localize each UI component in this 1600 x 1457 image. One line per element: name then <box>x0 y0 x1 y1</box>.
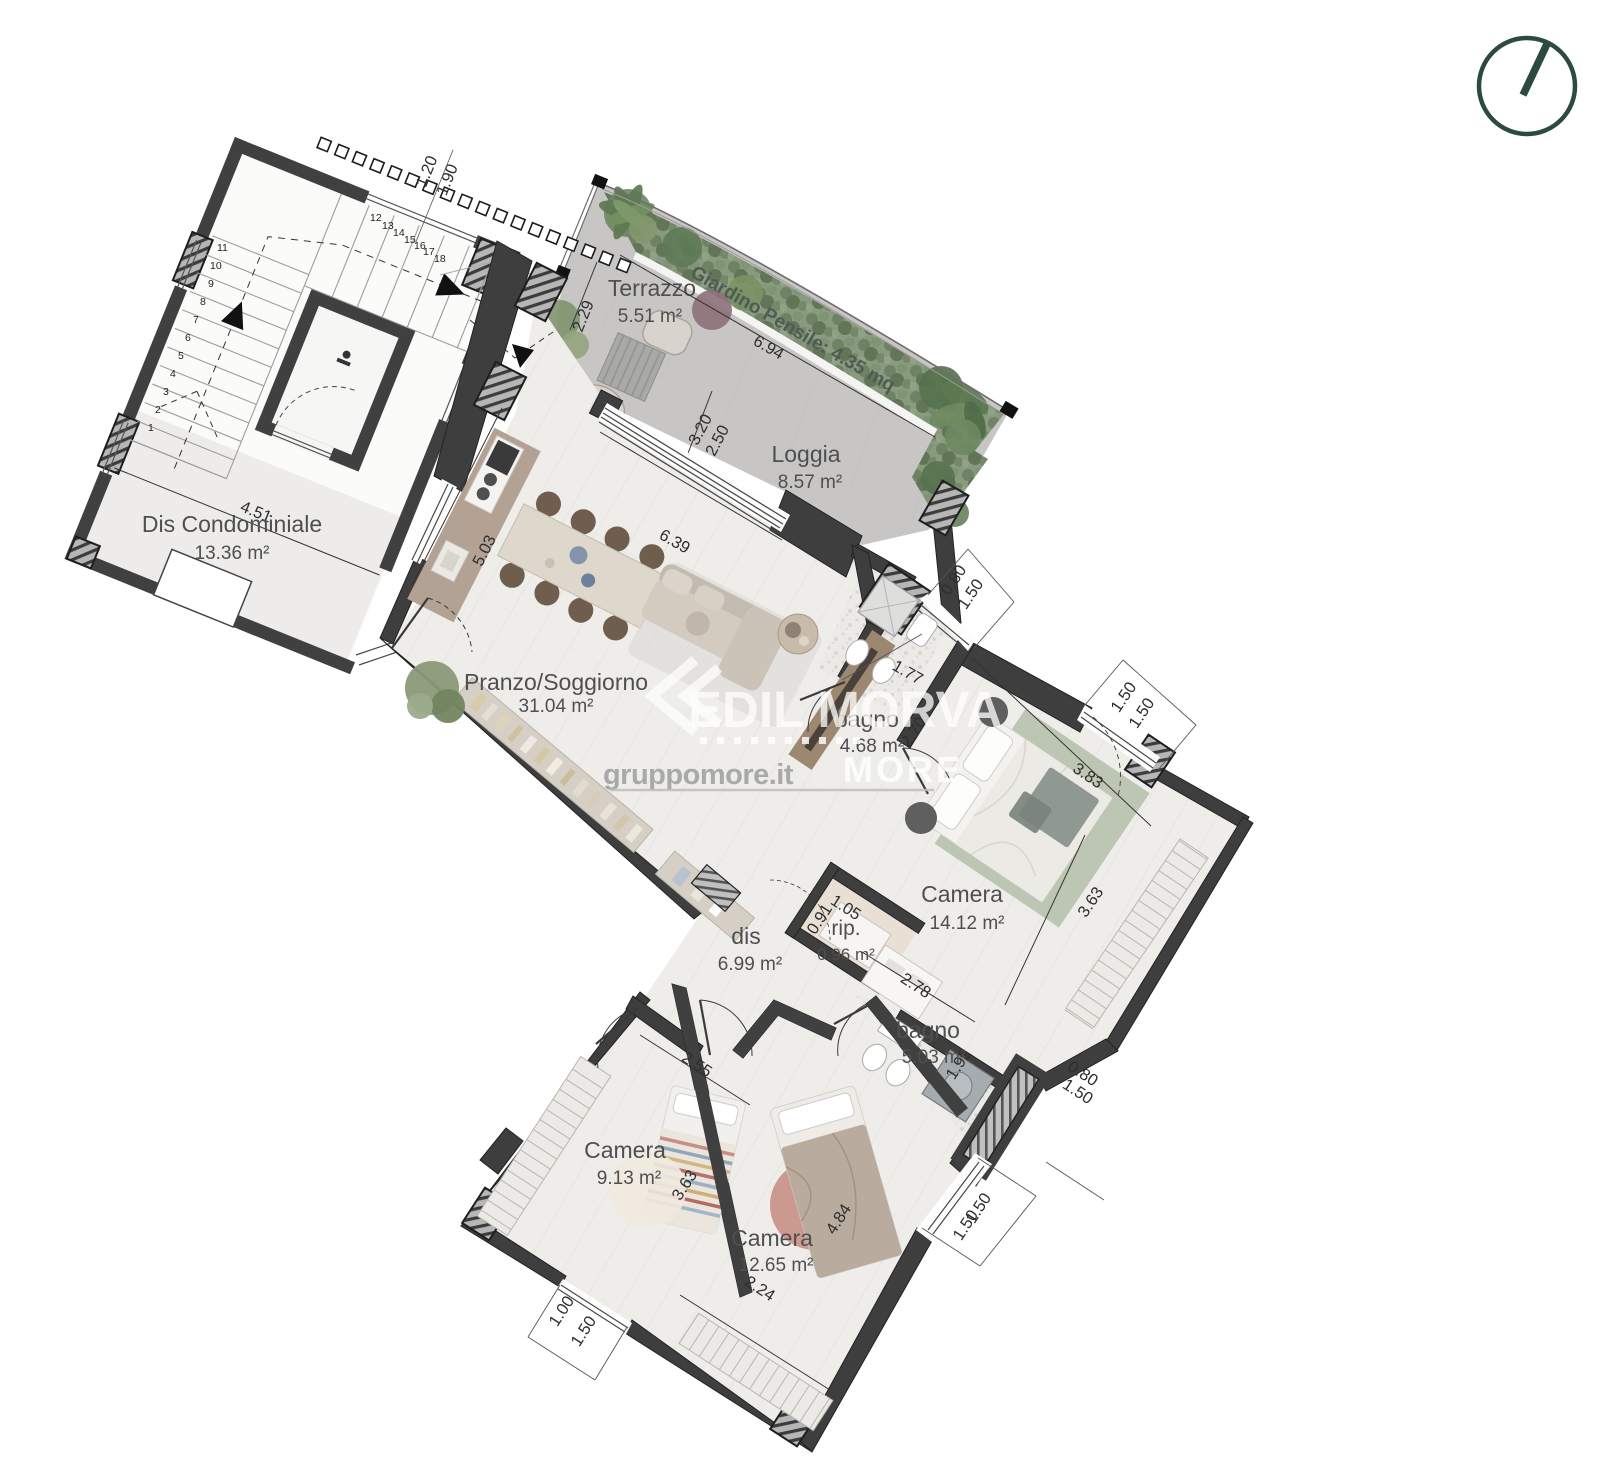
svg-text:11: 11 <box>217 242 228 254</box>
svg-text:6: 6 <box>185 332 191 344</box>
svg-text:rip.: rip. <box>831 917 860 940</box>
svg-text:Camera: Camera <box>731 1225 813 1251</box>
svg-text:Terrazzo: Terrazzo <box>608 275 696 301</box>
svg-text:5: 5 <box>178 350 184 362</box>
svg-text:1: 1 <box>148 422 154 434</box>
svg-text:31.04 m²: 31.04 m² <box>519 696 594 717</box>
svg-text:9: 9 <box>208 278 214 290</box>
svg-text:8: 8 <box>200 296 206 308</box>
svg-text:18: 18 <box>434 253 446 265</box>
svg-text:0.96 m²: 0.96 m² <box>817 945 875 964</box>
svg-text:Dis Condominiale: Dis Condominiale <box>142 511 322 537</box>
svg-text:Camera: Camera <box>921 881 1003 907</box>
svg-text:bagno: bagno <box>896 1017 960 1043</box>
svg-text:12: 12 <box>370 212 382 224</box>
svg-text:3: 3 <box>163 386 169 398</box>
svg-text:dis: dis <box>731 923 760 949</box>
svg-text:14.12 m²: 14.12 m² <box>930 913 1005 934</box>
svg-text:9.13 m²: 9.13 m² <box>597 1168 661 1189</box>
svg-text:EDIL MORVA: EDIL MORVA <box>688 681 1003 738</box>
svg-text:Loggia: Loggia <box>771 441 840 467</box>
svg-text:2: 2 <box>155 404 161 416</box>
svg-text:Pranzo/Soggiorno: Pranzo/Soggiorno <box>464 669 648 695</box>
svg-text:6.99 m²: 6.99 m² <box>718 954 782 975</box>
svg-text:13.36 m²: 13.36 m² <box>195 543 270 564</box>
svg-text:7: 7 <box>193 314 199 326</box>
svg-text:12.65 m²: 12.65 m² <box>739 1255 814 1276</box>
svg-text:gruppomore.it: gruppomore.it <box>603 759 794 791</box>
svg-text:Camera: Camera <box>584 1137 666 1163</box>
svg-text:4: 4 <box>170 368 176 380</box>
svg-text:8.57 m²: 8.57 m² <box>778 472 842 493</box>
svg-text:5.03 m²: 5.03 m² <box>902 1047 966 1068</box>
svg-text:5.51 m²: 5.51 m² <box>618 306 682 327</box>
svg-text:MORE: MORE <box>843 749 963 790</box>
svg-text:10: 10 <box>210 260 222 272</box>
